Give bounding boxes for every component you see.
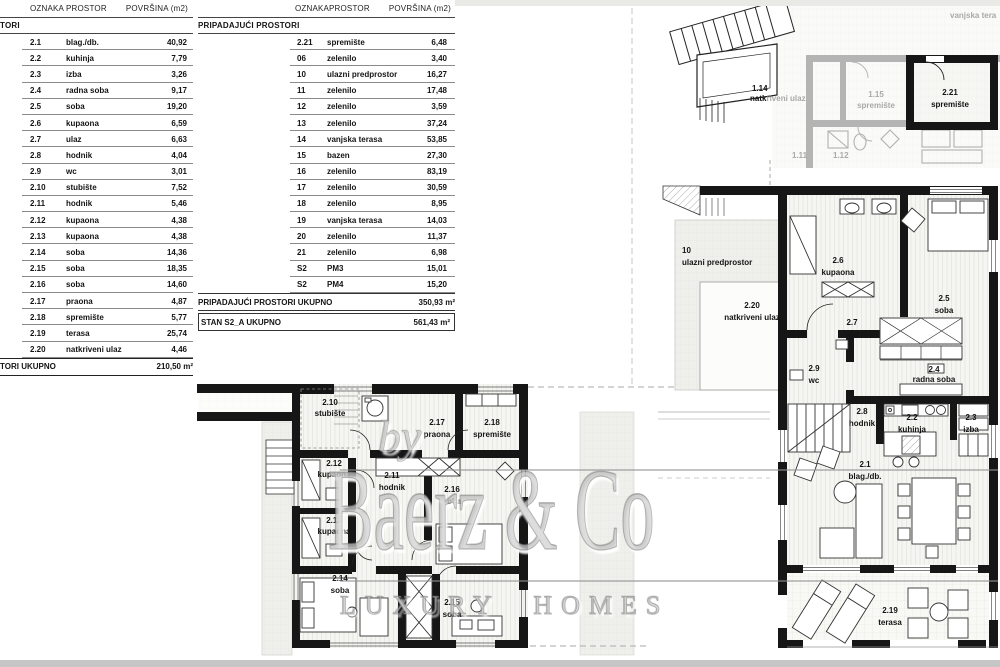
- label-112: 1.12: [833, 151, 849, 160]
- table-cell: 6,48: [431, 37, 447, 46]
- section-label: PRIPADAJUĆI PROSTORI: [198, 18, 455, 34]
- table-row: 21zelenilo6,98: [290, 244, 455, 260]
- label-221-name: spremište: [931, 100, 969, 109]
- col-oznaka: OZNAKA: [295, 4, 329, 13]
- table-cell: 2.20: [30, 345, 46, 354]
- total-value: 350,93 m²: [419, 298, 455, 307]
- table-cell: terasa: [66, 329, 90, 338]
- table-cell: 11: [297, 86, 305, 95]
- table-row: 10ulazni predprostor16,27: [290, 66, 455, 82]
- label-10-name: ulazni predprostor: [682, 258, 752, 267]
- table-cell: 2.15: [30, 264, 46, 273]
- table-cell: 15,20: [427, 280, 447, 289]
- label-26-num: 2.6: [832, 256, 844, 265]
- table-cell: 4,04: [171, 151, 187, 160]
- table-cell: 2.7: [30, 135, 41, 144]
- table-row: 19vanjska terasa14,03: [290, 212, 455, 228]
- label-26-name: kupaona: [822, 268, 855, 277]
- table-row: 2.5soba19,20: [22, 99, 193, 115]
- table-cell: 3,40: [431, 54, 447, 63]
- table-cell: 25,74: [167, 329, 187, 338]
- table-cell: natkriveni ulaz: [66, 345, 122, 354]
- table-cell: kupaona: [66, 216, 99, 225]
- label-214-name: soba: [331, 586, 350, 595]
- table-cell: 2.6: [30, 118, 41, 127]
- table-cell: 2.13: [30, 232, 46, 241]
- label-23-num: 2.3: [965, 413, 977, 422]
- table-cell: 40,92: [167, 37, 187, 46]
- label-21-name: blag./db.: [849, 472, 882, 481]
- table-cell: 17,48: [427, 86, 447, 95]
- label-210-name: stubište: [315, 409, 346, 418]
- table-cell: 10: [297, 70, 306, 79]
- label-27-num: 2.7: [846, 318, 858, 327]
- table-cell: 18,35: [167, 264, 187, 273]
- label-216-num: 2.16: [444, 485, 460, 494]
- table-cell: 2.19: [30, 329, 46, 338]
- table-row: 2.6kupaona6,59: [22, 115, 193, 131]
- label-220-num: 2.20: [744, 301, 760, 310]
- table-cell: blag./db.: [66, 37, 99, 46]
- table-prostori: OZNAKA PROSTOR POVRŠINA (m2) TORI 2.1bla…: [0, 0, 193, 376]
- table-cell: soba: [66, 248, 85, 257]
- table-cell: 6,98: [431, 248, 447, 257]
- table-row: 06zelenilo3,40: [290, 50, 455, 66]
- table-row: 2.18spremište5,77: [22, 309, 193, 325]
- table-cell: 2.4: [30, 86, 41, 95]
- label-218-name: spremište: [473, 430, 511, 439]
- label-219-num: 2.19: [882, 606, 898, 615]
- table-cell: 83,19: [427, 167, 447, 176]
- table-cell: 2.11: [30, 199, 45, 208]
- table-row: 2.16soba14,60: [22, 277, 193, 293]
- table-cell: stubište: [66, 183, 97, 192]
- table-header: OZNAKA PROSTOR POVRŠINA (m2): [0, 0, 193, 18]
- label-211-num: 2.11: [384, 471, 400, 480]
- table-cell: kupaona: [66, 232, 99, 241]
- label-212-num: 2.12: [326, 459, 342, 468]
- table-cell: 3,26: [171, 70, 187, 79]
- plan-upper-gray: vanjska tera 1.14 natkriveni ulaz 1.15 s…: [670, 0, 1000, 186]
- table-cell: 19: [297, 216, 306, 225]
- total-value: 210,50 m²: [157, 362, 193, 371]
- table-cell: 06: [297, 54, 306, 63]
- table-cell: 2.17: [30, 296, 46, 305]
- table-cell: zelenilo: [327, 118, 356, 127]
- table-cell: 2.1: [30, 37, 41, 46]
- table-rows: 2.21spremište6,4806zelenilo3,4010ulazni …: [198, 34, 455, 293]
- table-cell: 3,01: [171, 167, 187, 176]
- table-row: 2.9wc3,01: [22, 164, 193, 180]
- table-cell: 2.16: [30, 280, 46, 289]
- label-211-name: hodnik: [379, 483, 406, 492]
- table-row: 2.10stubište7,52: [22, 180, 193, 196]
- col-povrsina: POVRŠINA (m2): [389, 4, 451, 13]
- label-114-num: 1.14: [752, 84, 768, 93]
- label-27-name: ulaz: [844, 330, 860, 339]
- table-row: 2.11hodnik5,46: [22, 196, 193, 212]
- grand-total-value: 561,43 m²: [414, 318, 450, 327]
- top-gray-band: [455, 0, 1000, 6]
- table-cell: 18: [297, 199, 306, 208]
- table-row: 16zelenilo83,19: [290, 164, 455, 180]
- table-row: 2.19terasa25,74: [22, 325, 193, 341]
- table-row: 2.20natkriveni ulaz4,46: [22, 342, 193, 358]
- floorplan-sheet: vanjska tera 1.14 natkriveni ulaz 1.15 s…: [0, 0, 1000, 667]
- table-cell: 6,59: [171, 118, 187, 127]
- col-oznaka: OZNAKA: [30, 4, 64, 13]
- table-cell: 4,46: [171, 345, 187, 354]
- table-row: 2.1blag./db.40,92: [22, 34, 193, 50]
- table-row: 15bazen27,30: [290, 147, 455, 163]
- col-prostor: PROSTOR: [329, 4, 370, 13]
- table-cell: wc: [66, 167, 77, 176]
- label-29-name: wc: [808, 376, 820, 385]
- label-25-name: soba: [935, 306, 954, 315]
- label-114-name: natkriveni ulaz: [750, 94, 806, 103]
- table-cell: zelenilo: [327, 86, 356, 95]
- table-row: 2.13kupaona4,38: [22, 228, 193, 244]
- table-row: 2.8hodnik4,04: [22, 147, 193, 163]
- table-cell: 27,30: [427, 151, 447, 160]
- label-28-num: 2.8: [856, 407, 868, 416]
- label-218-num: 2.18: [484, 418, 500, 427]
- label-213-num: 2.13: [326, 516, 342, 525]
- table-cell: 12: [297, 102, 306, 111]
- table-cell: PM3: [327, 264, 343, 273]
- table-cell: kupaona: [66, 118, 99, 127]
- total-label: TORI UKUPNO: [0, 362, 56, 371]
- label-21-num: 2.1: [859, 460, 871, 469]
- table-cell: 2.3: [30, 70, 41, 79]
- label-22-name: kuhinja: [898, 425, 927, 434]
- table-cell: 3,59: [431, 102, 447, 111]
- table-cell: 4,38: [171, 232, 187, 241]
- label-22-num: 2.2: [906, 413, 918, 422]
- table-cell: zelenilo: [327, 232, 356, 241]
- table-cell: 7,79: [171, 54, 187, 63]
- table-cell: 2.10: [30, 183, 46, 192]
- table-cell: 14,03: [427, 216, 447, 225]
- table-cell: hodnik: [66, 199, 92, 208]
- label-24-name: radna soba: [913, 375, 956, 384]
- table-cell: 17: [297, 183, 306, 192]
- table-header: OZNAKA PROSTOR POVRŠINA (m2): [198, 0, 455, 18]
- table-row: 20zelenilo11,37: [290, 228, 455, 244]
- table-cell: 2.21: [297, 37, 313, 46]
- table-pripadajuci: OZNAKA PROSTOR POVRŠINA (m2) PRIPADAJUĆI…: [198, 0, 455, 331]
- grand-total-label: STAN S2_A UKUPNO: [201, 318, 281, 327]
- table-cell: 5,77: [171, 313, 187, 322]
- table-cell: 30,59: [427, 183, 447, 192]
- table-cell: zelenilo: [327, 167, 356, 176]
- label-215-name: soba: [443, 610, 462, 619]
- label-215-num: 2.15: [444, 598, 460, 607]
- table-cell: ulazni predprostor: [327, 70, 397, 79]
- table-cell: 16,27: [427, 70, 447, 79]
- label-219-name: terasa: [878, 618, 902, 627]
- table-cell: S2: [297, 264, 307, 273]
- table-cell: spremište: [327, 37, 365, 46]
- table-cell: 4,87: [171, 296, 187, 305]
- table-cell: 2.18: [30, 313, 46, 322]
- table-cell: 15,01: [427, 264, 447, 273]
- table-cell: zelenilo: [327, 54, 356, 63]
- table-row: 17zelenilo30,59: [290, 180, 455, 196]
- table-cell: zelenilo: [327, 248, 356, 257]
- table-cell: vanjska terasa: [327, 216, 382, 225]
- table-cell: 5,46: [171, 199, 187, 208]
- label-210-num: 2.10: [322, 398, 338, 407]
- table-row: 2.2kuhinja7,79: [22, 50, 193, 66]
- label-212-name: kupaona: [318, 470, 351, 479]
- label-214-num: 2.14: [332, 574, 348, 583]
- table-cell: 9,17: [171, 86, 187, 95]
- table-cell: 2.12: [30, 216, 46, 225]
- table-cell: kuhinja: [66, 54, 94, 63]
- table-cell: 2.2: [30, 54, 41, 63]
- label-vanjska-terasa: vanjska tera: [950, 11, 997, 20]
- total-label: PRIPADAJUĆI PROSTORI UKUPNO: [198, 298, 332, 307]
- table-cell: 8,95: [431, 199, 447, 208]
- total-row: TORI UKUPNO 210,50 m²: [0, 358, 193, 376]
- table-cell: 6,63: [171, 135, 187, 144]
- table-cell: zelenilo: [327, 183, 356, 192]
- table-cell: hodnik: [66, 151, 92, 160]
- table-cell: bazen: [327, 151, 350, 160]
- label-10-num: 10: [682, 246, 691, 255]
- table-cell: 4,38: [171, 216, 187, 225]
- table-row: S2PM415,20: [290, 277, 455, 293]
- table-cell: soba: [66, 280, 85, 289]
- table-row: 2.4radna soba9,17: [22, 83, 193, 99]
- table-row: 2.17praona4,87: [22, 293, 193, 309]
- table-cell: PM4: [327, 280, 343, 289]
- table-row: 2.21spremište6,48: [290, 34, 455, 50]
- table-cell: 20: [297, 232, 306, 241]
- table-cell: 2.5: [30, 102, 41, 111]
- table-cell: spremište: [66, 313, 104, 322]
- label-115-num: 1.15: [868, 90, 884, 99]
- label-216-name: soba: [443, 497, 462, 506]
- label-217-name: praona: [424, 430, 451, 439]
- label-25-num: 2.5: [938, 294, 950, 303]
- table-cell: 2.9: [30, 167, 41, 176]
- table-row: 2.12kupaona4,38: [22, 212, 193, 228]
- table-cell: zelenilo: [327, 199, 356, 208]
- table-cell: zelenilo: [327, 102, 356, 111]
- table-cell: izba: [66, 70, 82, 79]
- label-29-num: 2.9: [808, 364, 820, 373]
- table-row: 2.7ulaz6,63: [22, 131, 193, 147]
- grand-total-row: STAN S2_A UKUPNO 561,43 m²: [198, 313, 455, 331]
- table-row: S2PM315,01: [290, 261, 455, 277]
- label-221-num: 2.21: [942, 88, 958, 97]
- table-row: 2.15soba18,35: [22, 261, 193, 277]
- label-28-name: hodnik: [849, 419, 876, 428]
- table-cell: radna soba: [66, 86, 109, 95]
- table-cell: 14,60: [167, 280, 187, 289]
- table-cell: 37,24: [427, 118, 447, 127]
- label-220-name: natkriveni ulaz: [724, 313, 780, 322]
- total-row: PRIPADAJUĆI PROSTORI UKUPNO 350,93 m²: [198, 293, 455, 311]
- table-cell: soba: [66, 264, 85, 273]
- label-23-name: izba: [963, 425, 979, 434]
- table-cell: praona: [66, 296, 93, 305]
- table-cell: 14,36: [167, 248, 187, 257]
- col-povrsina: POVRŠINA (m2): [126, 4, 188, 13]
- table-row: 13zelenilo37,24: [290, 115, 455, 131]
- table-row: 18zelenilo8,95: [290, 196, 455, 212]
- label-24-num: 2.4: [928, 365, 940, 374]
- label-111: 1.11: [792, 151, 808, 160]
- entry-canopy: [663, 186, 700, 215]
- label-217-num: 2.17: [429, 418, 445, 427]
- section-label: TORI: [0, 18, 193, 34]
- table-cell: 15: [297, 151, 306, 160]
- table-cell: 53,85: [427, 135, 447, 144]
- table-cell: vanjska terasa: [327, 135, 382, 144]
- label-115-name: spremište: [857, 101, 895, 110]
- table-row: 12zelenilo3,59: [290, 99, 455, 115]
- table-cell: soba: [66, 102, 85, 111]
- table-row: 14vanjska terasa53,85: [290, 131, 455, 147]
- col-prostor: PROSTOR: [66, 4, 107, 13]
- table-row: 2.3izba3,26: [22, 66, 193, 82]
- table-cell: ulaz: [66, 135, 82, 144]
- table-cell: 7,52: [171, 183, 187, 192]
- table-cell: 21: [297, 248, 306, 257]
- plan-main: 10 ulazni predprostor 2.20 natkriveni ul…: [658, 186, 998, 648]
- table-cell: 2.8: [30, 151, 41, 160]
- table-cell: 16: [297, 167, 306, 176]
- table-row: 2.14soba14,36: [22, 244, 193, 260]
- footer-bar: [0, 660, 1000, 667]
- table-cell: 2.14: [30, 248, 46, 257]
- table-cell: 19,20: [167, 102, 187, 111]
- table-cell: 14: [297, 135, 306, 144]
- table-cell: 13: [297, 118, 306, 127]
- table-cell: 11,37: [427, 232, 447, 241]
- table-cell: S2: [297, 280, 307, 289]
- label-213-name: kupaona: [318, 527, 351, 536]
- table-rows: 2.1blag./db.40,922.2kuhinja7,792.3izba3,…: [0, 34, 193, 358]
- table-row: 11zelenilo17,48: [290, 83, 455, 99]
